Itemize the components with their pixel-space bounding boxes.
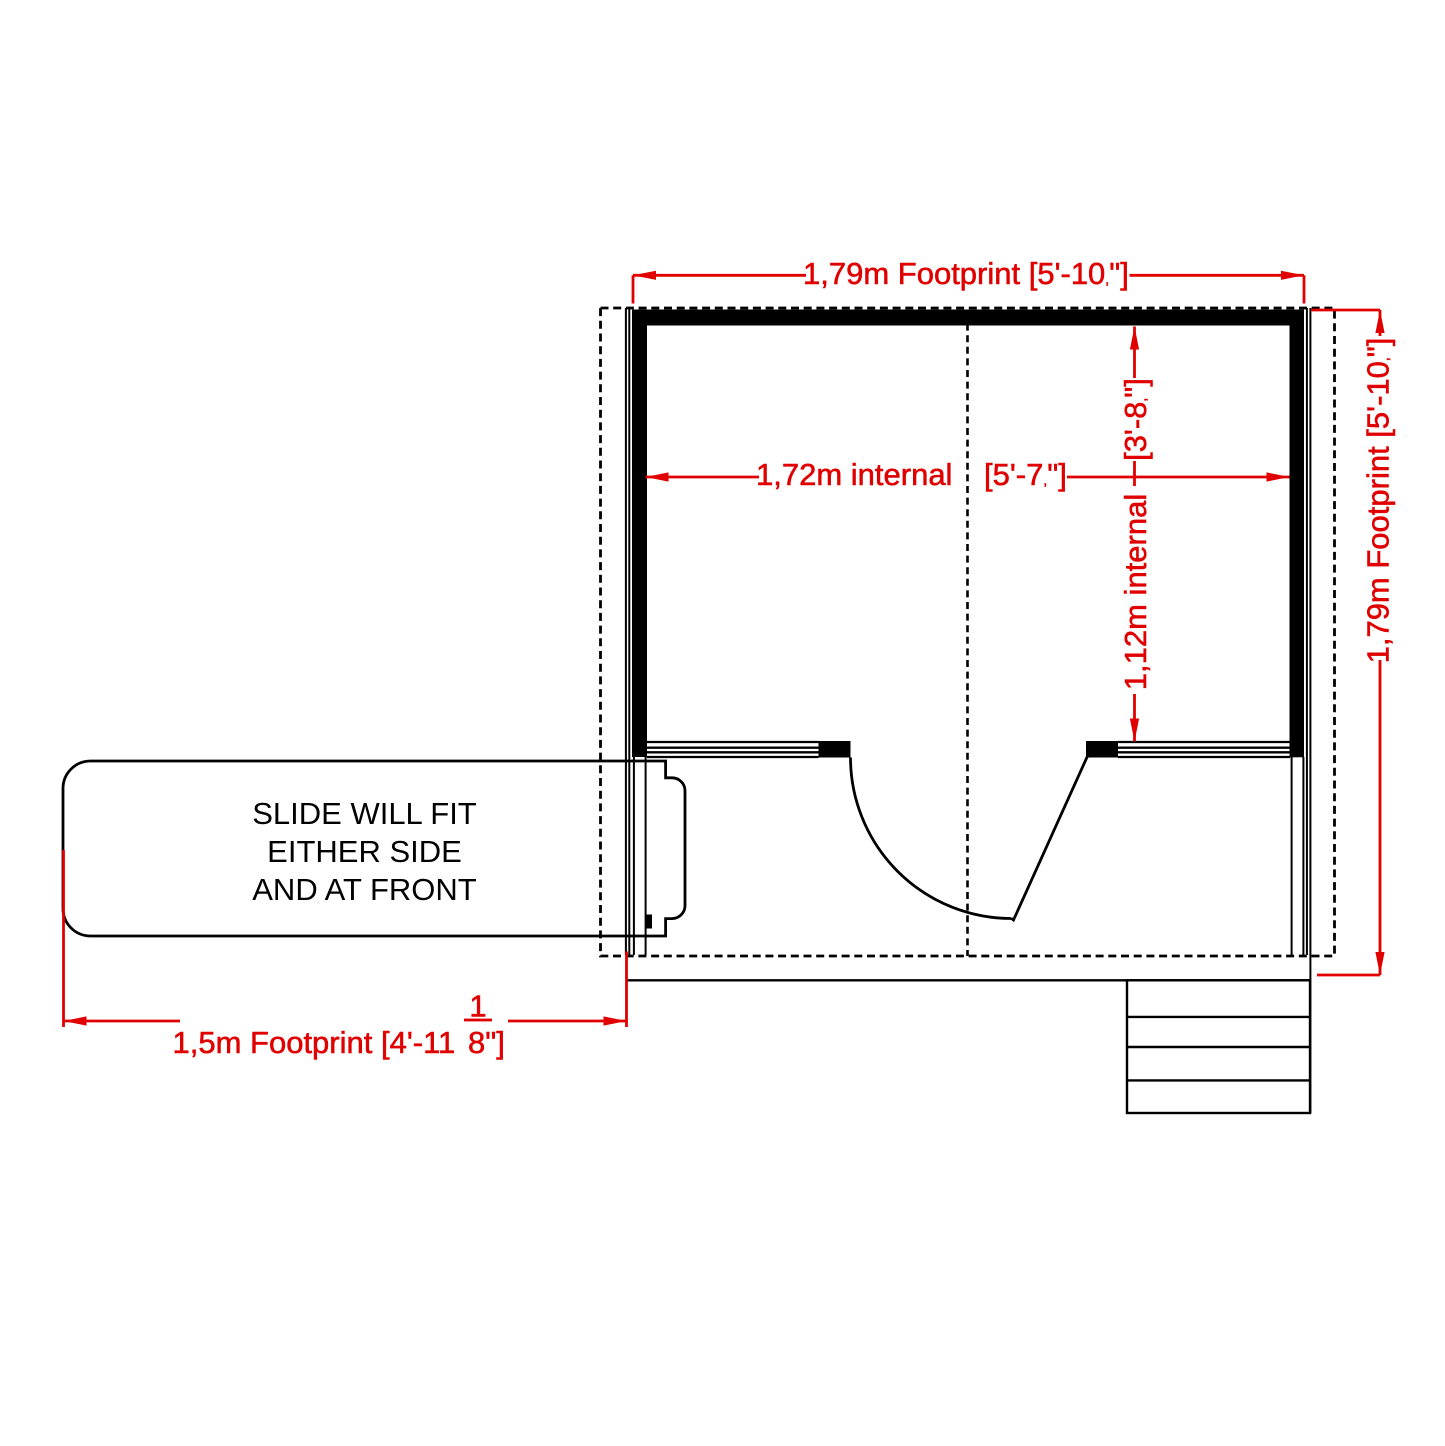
svg-text:1,12m internal: 1,12m internal bbox=[1118, 494, 1153, 690]
svg-text:1,72m internal: 1,72m internal bbox=[756, 457, 952, 492]
svg-text:8"]: 8"] bbox=[468, 1025, 505, 1060]
svg-text:1,79m Footprint [5'-10,"]: 1,79m Footprint [5'-10,"] bbox=[803, 256, 1129, 291]
svg-text:[5'-7,"]: [5'-7,"] bbox=[984, 457, 1067, 492]
svg-text:[3'-8,"]: [3'-8,"] bbox=[1118, 378, 1153, 461]
svg-text:1: 1 bbox=[469, 989, 486, 1024]
svg-text:AND AT FRONT: AND AT FRONT bbox=[252, 872, 477, 907]
svg-text:1,5m Footprint [4'-11: 1,5m Footprint [4'-11 bbox=[173, 1025, 456, 1060]
svg-text:EITHER SIDE: EITHER SIDE bbox=[267, 834, 462, 869]
svg-text:1,79m Footprint [5'-10,"]: 1,79m Footprint [5'-10,"] bbox=[1360, 338, 1395, 664]
svg-text:SLIDE WILL FIT: SLIDE WILL FIT bbox=[252, 796, 477, 831]
